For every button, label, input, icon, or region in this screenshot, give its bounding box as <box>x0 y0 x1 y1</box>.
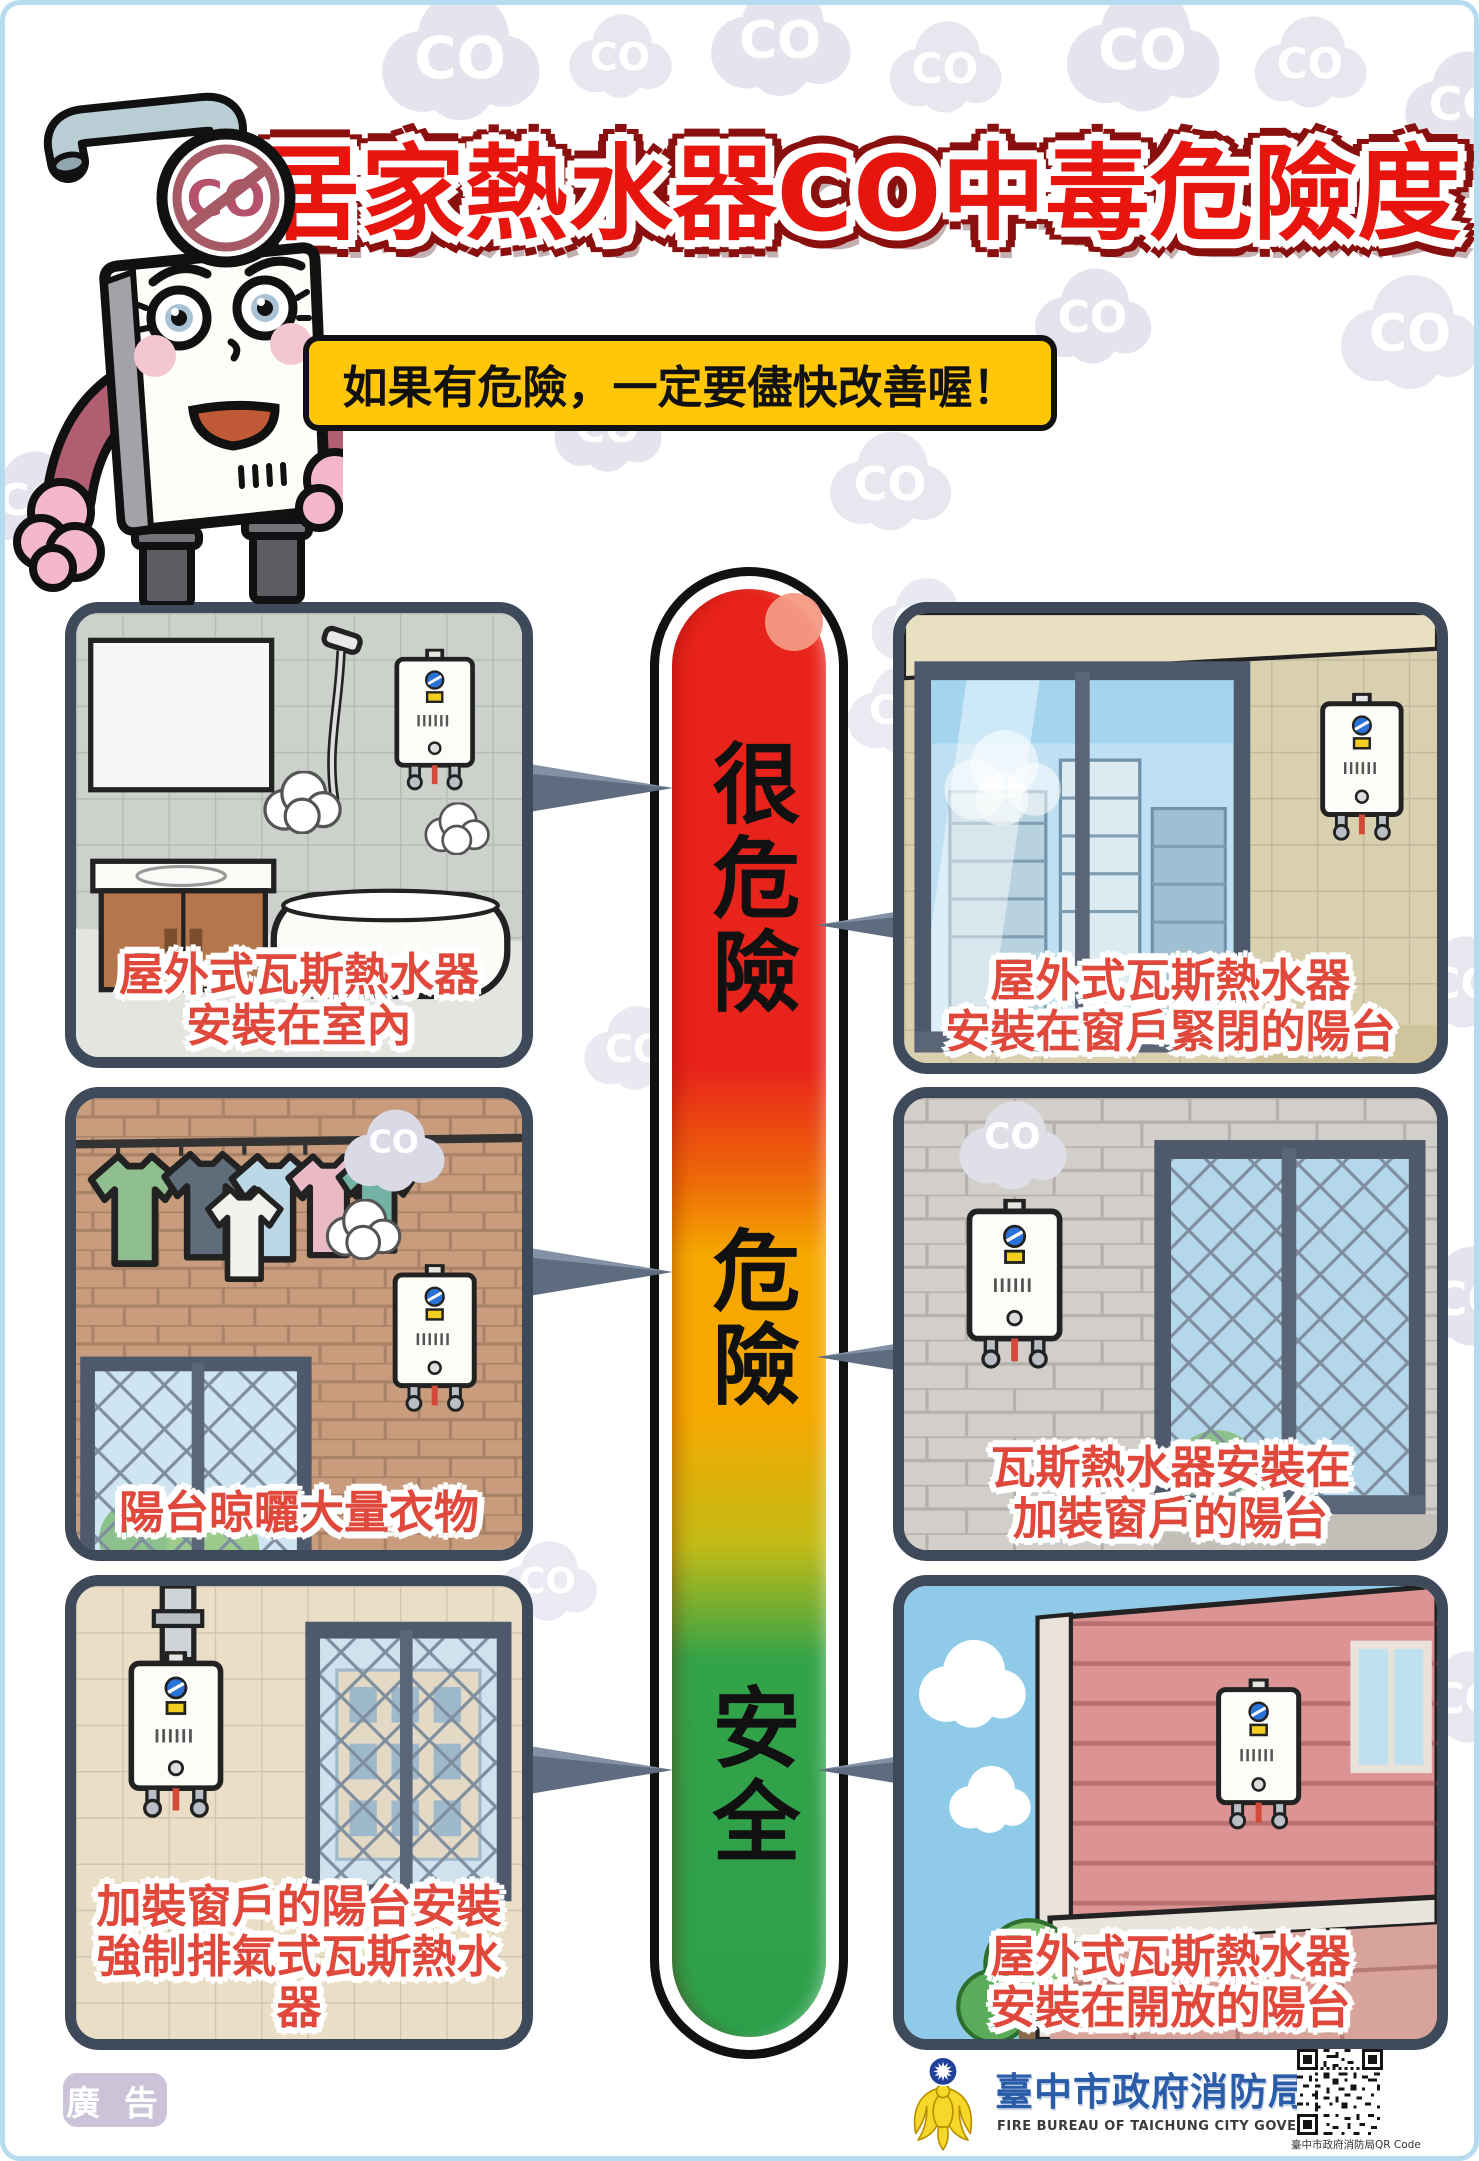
speech-bubble-text: 如果有危險，一定要儘快改善喔！ <box>342 351 1017 416</box>
qr-caption: 臺中市政府消防局QR Code <box>1291 2137 1401 2152</box>
gauge-label-dangerous: 危險 <box>705 1225 793 1413</box>
mascot-left-hand <box>17 482 101 588</box>
co-cloud: CO <box>825 430 955 532</box>
co-cloud: CO <box>1250 15 1370 109</box>
balcony-window <box>1355 1645 1428 1769</box>
panel-caption: 屋外式瓦斯熱水器 安裝在開放的陽台 <box>904 1932 1437 2033</box>
agency-name-zh: 臺中市政府消防局 <box>995 2061 1307 2116</box>
svg-text:CO: CO <box>369 1125 419 1161</box>
panel-heater-closed-balcony: 屋外式瓦斯熱水器 安裝在窗戶緊閉的陽台 <box>893 602 1448 1074</box>
panel-heater-open-balcony: 屋外式瓦斯熱水器 安裝在開放的陽台 <box>893 1575 1448 2050</box>
co-cloud: CO <box>885 20 1005 114</box>
co-cloud: CO <box>705 0 855 98</box>
fire-bureau-logo <box>907 2055 979 2151</box>
gauge-label-very-dangerous: 很危險 <box>705 738 793 1020</box>
panel-caption: 瓦斯熱水器安裝在 加裝窗戶的陽台 <box>904 1443 1437 1544</box>
panel-heater-added-window-balcony: CO 瓦斯熱水器安裝在 加裝窗戶的陽台 <box>893 1087 1448 1561</box>
scene-clothes-balcony-illustration: CO <box>76 1098 522 1550</box>
poster-title-text: 居家熱水器CO中毒危險度 <box>257 133 1462 255</box>
arrow-row1-left <box>523 757 673 819</box>
qr-code <box>1297 2049 1383 2135</box>
co-cloud: CO <box>565 13 675 99</box>
ad-badge-label: 廣 告 <box>66 2076 164 2125</box>
footer: 臺中市政府消防局 FIRE BUREAU OF TAICHUNG CITY GO… <box>845 2045 1465 2161</box>
co-cloud: CO <box>1335 273 1479 391</box>
lattice-window <box>305 1622 511 1902</box>
poster-title: 居家熱水器CO中毒危險度 <box>235 109 1479 260</box>
panel-caption: 陽台晾曬大量衣物 <box>76 1488 522 1538</box>
panel-caption: 屋外式瓦斯熱水器 安裝在室內 <box>76 950 522 1051</box>
panel-forced-exhaust-heater: 加裝窗戶的陽台安裝 強制排氣式瓦斯熱水器 <box>65 1575 533 2050</box>
speech-bubble: 如果有危險，一定要儘快改善喔！ <box>303 335 1057 431</box>
co-cloud-label: CO <box>375 24 545 92</box>
svg-text:CO: CO <box>984 1116 1040 1157</box>
co-safety-poster: CO CO CO CO CO CO CO CO CO CO CO CO CO C… <box>0 0 1479 2161</box>
ad-badge: 廣 告 <box>63 2073 167 2127</box>
co-cloud: CO <box>1060 0 1225 113</box>
exhaust-pipe <box>154 1586 202 1660</box>
gauge-label-safe: 安全 <box>705 1682 793 1870</box>
panel-caption: 屋外式瓦斯熱水器 安裝在窗戶緊閉的陽台 <box>904 956 1437 1057</box>
panel-heater-indoors: 屋外式瓦斯熱水器 安裝在室內 <box>65 602 533 1068</box>
arrow-row2-left <box>523 1241 673 1303</box>
arrow-row3-left <box>523 1739 673 1801</box>
mascot-water-heater: CO <box>13 60 343 605</box>
panel-caption: 加裝窗戶的陽台安裝 強制排氣式瓦斯熱水器 <box>76 1882 522 2033</box>
risk-gauge: 很危險 危險 安全 <box>650 567 848 2059</box>
panel-clothes-balcony: CO 陽台晾曬大量衣物 <box>65 1087 533 1561</box>
risk-gauge-highlight <box>765 593 823 651</box>
co-cloud: CO <box>375 0 545 122</box>
